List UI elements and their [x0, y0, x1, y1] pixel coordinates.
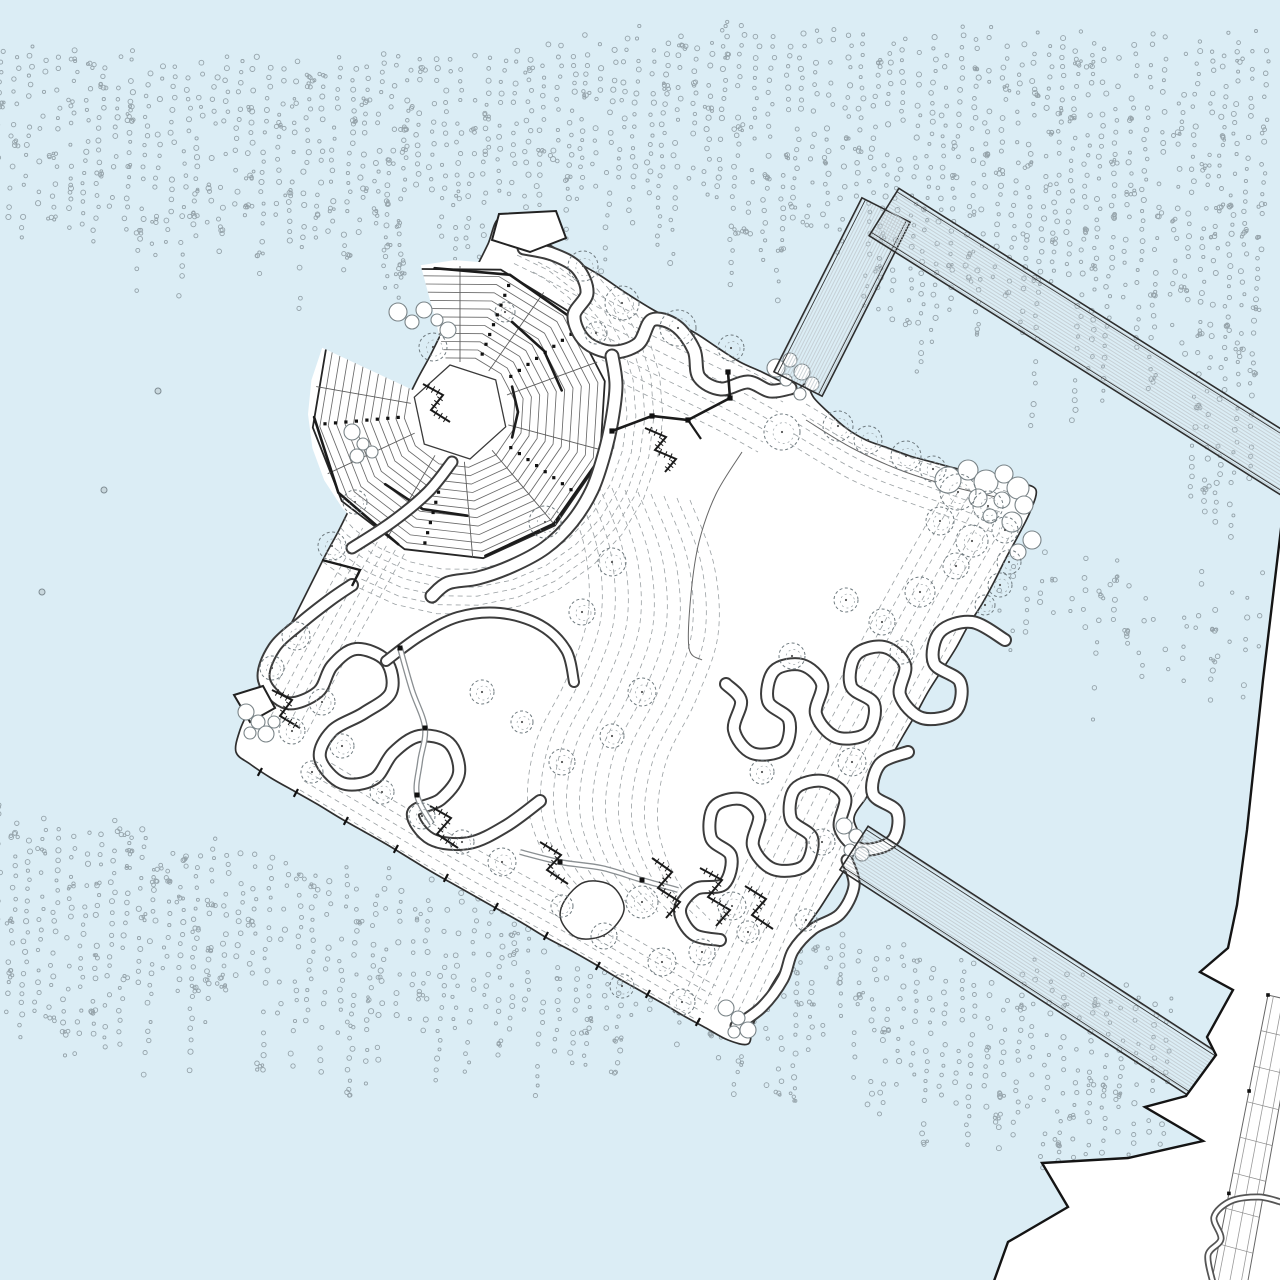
boardwalk-node — [609, 428, 614, 433]
seat-marker — [423, 541, 426, 544]
seat-marker — [355, 420, 358, 423]
seat-marker — [426, 531, 429, 534]
tree-trunk — [271, 667, 273, 669]
seat-marker — [376, 418, 379, 421]
tree-trunk — [501, 861, 503, 863]
tree-trunk — [681, 1001, 683, 1003]
seat-marker — [481, 353, 484, 356]
tree-trunk — [354, 501, 356, 503]
site-plan-drawing — [0, 0, 1280, 1280]
tree-trunk — [791, 655, 793, 657]
boulder — [983, 509, 997, 523]
seat-marker — [535, 357, 538, 360]
tree-trunk — [955, 565, 957, 567]
seat-marker — [492, 323, 495, 326]
boardwalk-node — [727, 395, 732, 400]
boulder — [440, 322, 456, 338]
seat-marker — [544, 351, 547, 354]
tree-trunk — [341, 745, 343, 747]
tree-trunk — [321, 701, 323, 703]
tree-trunk — [677, 327, 679, 329]
seat-marker — [518, 452, 521, 455]
tree-trunk — [381, 791, 383, 793]
seat-marker — [526, 363, 529, 366]
walkway-node — [423, 726, 428, 731]
boulder — [416, 302, 432, 318]
seat-marker — [518, 369, 521, 372]
seat-marker — [535, 464, 538, 467]
tree-trunk — [845, 599, 847, 601]
water-marker-dot — [155, 388, 161, 394]
tree-trunk — [611, 735, 613, 737]
tree-trunk — [504, 311, 506, 313]
boulder — [935, 467, 961, 493]
tree-trunk — [421, 815, 423, 817]
boulder — [344, 424, 360, 440]
seat-marker — [488, 333, 491, 336]
boulder — [994, 492, 1010, 508]
tree-trunk — [837, 425, 839, 427]
tree-trunk — [781, 431, 783, 433]
seat-marker — [526, 458, 529, 461]
tree-trunk — [1008, 561, 1010, 563]
seat-marker — [365, 419, 368, 422]
tree-trunk — [971, 540, 973, 542]
tree-trunk — [805, 919, 807, 921]
tree-trunk — [621, 302, 623, 304]
seat-marker — [429, 521, 432, 524]
tree-trunk — [595, 332, 597, 334]
tree-trunk — [821, 841, 823, 843]
pier-column — [1227, 1192, 1231, 1196]
seat-marker — [509, 375, 512, 378]
tree-trunk — [311, 771, 313, 773]
seat-marker — [397, 416, 400, 419]
seat-marker — [561, 482, 564, 485]
seat-marker — [484, 343, 487, 346]
pier-column — [1266, 993, 1270, 997]
tree-trunk — [291, 730, 293, 732]
tree-trunk — [621, 985, 623, 987]
boulder — [366, 446, 378, 458]
boulder — [836, 818, 852, 834]
walkway-node — [398, 646, 403, 651]
walkway-node — [640, 878, 645, 883]
boardwalk-node — [725, 369, 730, 374]
tree-trunk — [661, 961, 663, 963]
seat-marker — [509, 446, 512, 449]
boulder — [405, 315, 419, 329]
tree-trunk — [957, 491, 959, 493]
boulder — [268, 716, 280, 728]
seat-marker — [344, 420, 347, 423]
tree-trunk — [905, 455, 907, 457]
seat-marker — [323, 422, 326, 425]
boulder — [389, 303, 407, 321]
pier-column — [1247, 1089, 1251, 1093]
tree-trunk — [521, 721, 523, 723]
walkway-node — [558, 860, 563, 865]
boardwalk-node — [649, 413, 654, 418]
boulder — [238, 704, 254, 720]
tree-trunk — [747, 931, 749, 933]
tree-trunk — [641, 691, 643, 693]
tree-trunk — [919, 591, 921, 593]
tree-trunk — [761, 771, 763, 773]
boulder — [1015, 496, 1033, 514]
boulder — [794, 388, 806, 400]
boulder — [740, 1022, 756, 1038]
seat-marker — [561, 339, 564, 342]
boulder — [1023, 531, 1041, 549]
tree-trunk — [881, 621, 883, 623]
seat-marker — [552, 476, 555, 479]
tree-trunk — [731, 905, 733, 907]
seat-marker — [552, 345, 555, 348]
tree-trunk — [544, 521, 546, 523]
boulder — [244, 727, 256, 739]
seat-marker — [569, 488, 572, 491]
tree-trunk — [561, 761, 563, 763]
tree-trunk — [603, 935, 605, 937]
tree-trunk — [611, 561, 613, 563]
tree-trunk — [331, 545, 333, 547]
tree-trunk — [295, 635, 297, 637]
seat-marker — [432, 511, 435, 514]
tree-trunk — [939, 520, 941, 522]
tree-trunk — [701, 951, 703, 953]
seat-marker — [507, 284, 510, 287]
tree-trunk — [582, 265, 584, 267]
tree-trunk — [561, 905, 563, 907]
water-marker-dot — [101, 487, 107, 493]
tree-trunk — [901, 651, 903, 653]
tree-trunk — [867, 439, 869, 441]
tree-trunk — [1004, 529, 1006, 531]
boardwalk-node — [685, 417, 690, 422]
seat-marker — [496, 313, 499, 316]
seat-marker — [434, 501, 437, 504]
tree-trunk — [481, 691, 483, 693]
boulder — [718, 1000, 734, 1016]
boulder — [731, 1011, 745, 1025]
boulder — [258, 726, 274, 742]
tree-trunk — [932, 468, 934, 470]
boulder — [728, 1026, 740, 1038]
boulder — [431, 314, 443, 326]
boulder — [350, 449, 364, 463]
tree-trunk — [641, 901, 643, 903]
tree-trunk — [984, 604, 986, 606]
tree-trunk — [581, 611, 583, 613]
tree-trunk — [999, 584, 1001, 586]
tree-trunk — [461, 841, 463, 843]
tree-trunk — [432, 346, 434, 348]
site-plan-canvas — [0, 0, 1280, 1280]
seat-marker — [386, 417, 389, 420]
seat-marker — [334, 421, 337, 424]
tree-trunk — [730, 347, 732, 349]
tree-trunk — [987, 505, 989, 507]
water-marker-dot — [39, 589, 45, 595]
tree-trunk — [851, 761, 853, 763]
boulder — [1010, 544, 1026, 560]
walkway-node — [415, 793, 420, 798]
seat-marker — [544, 470, 547, 473]
seat-marker — [503, 294, 506, 297]
